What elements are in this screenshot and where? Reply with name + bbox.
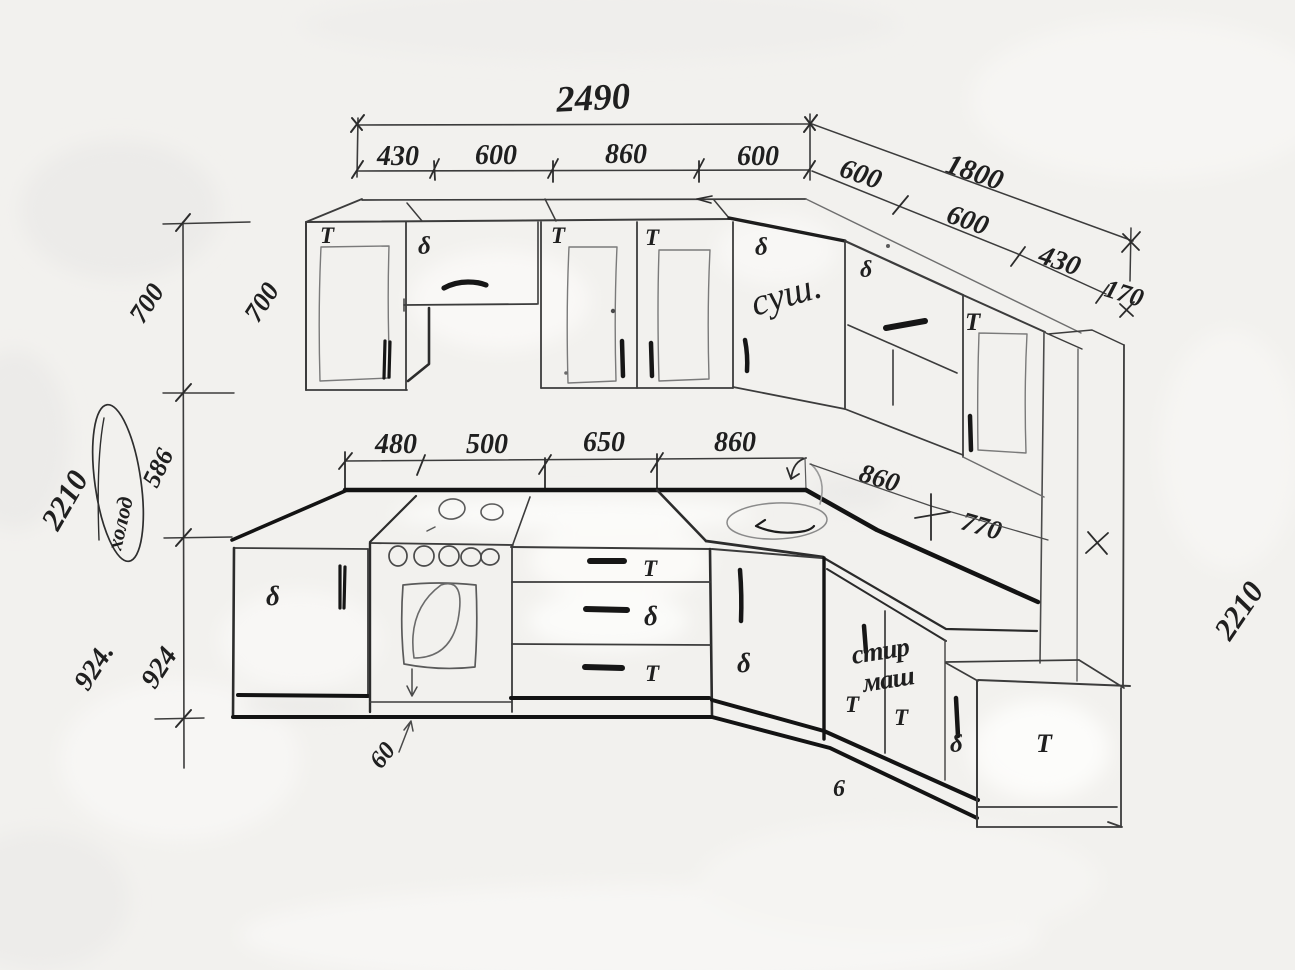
svg-text:T: T [551, 223, 566, 248]
svg-text:T: T [1036, 729, 1053, 758]
svg-text:T: T [894, 705, 909, 730]
svg-text:δ: δ [950, 731, 963, 758]
svg-text:T: T [645, 225, 660, 250]
svg-text:600: 600 [737, 141, 779, 172]
svg-text:δ: δ [860, 257, 872, 283]
svg-text:860: 860 [605, 139, 647, 170]
svg-text:δ: δ [644, 601, 658, 631]
svg-text:δ: δ [418, 233, 431, 260]
svg-text:δ: δ [737, 648, 751, 678]
svg-text:600: 600 [475, 140, 517, 171]
svg-text:T: T [320, 223, 335, 248]
svg-text:860: 860 [714, 427, 756, 458]
svg-text:480: 480 [374, 429, 417, 460]
svg-text:δ: δ [266, 581, 280, 611]
svg-text:650: 650 [583, 427, 625, 458]
svg-text:T: T [645, 661, 660, 686]
svg-text:δ: δ [755, 234, 768, 261]
svg-text:2490: 2490 [554, 76, 631, 121]
svg-text:T: T [643, 556, 658, 581]
svg-text:500: 500 [466, 429, 508, 460]
svg-text:T: T [965, 309, 982, 336]
svg-text:6: 6 [833, 776, 845, 802]
svg-text:T: T [845, 692, 860, 717]
svg-text:430: 430 [376, 141, 419, 172]
